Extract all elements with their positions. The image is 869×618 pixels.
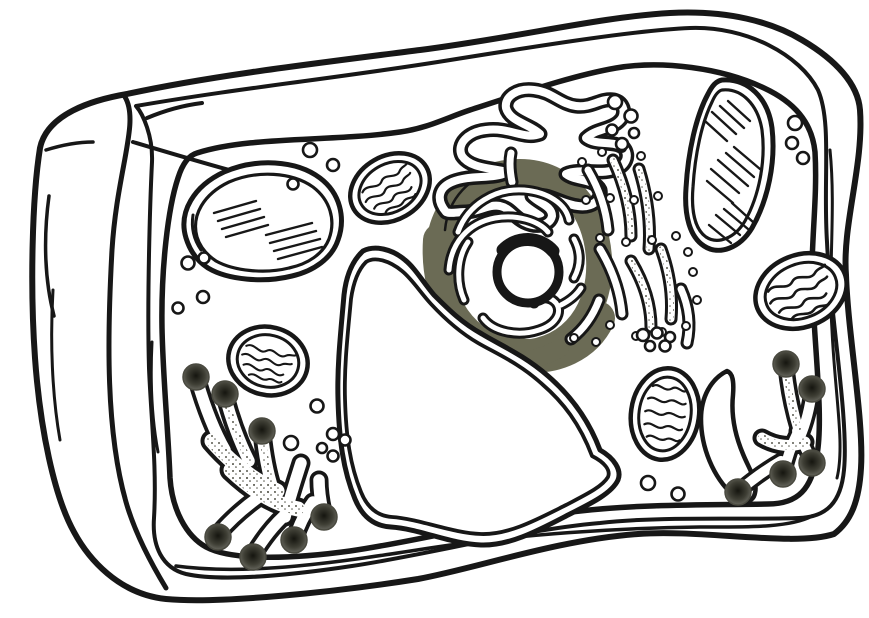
secretory-vesicle	[240, 544, 266, 570]
secretory-vesicle	[770, 461, 796, 487]
nucleolus	[497, 240, 559, 303]
secretory-vesicle	[281, 527, 307, 553]
secretory-vesicle	[311, 504, 337, 530]
secretory-vesicle	[249, 418, 275, 444]
secretory-vesicle	[799, 376, 825, 402]
secretory-vesicle	[725, 479, 751, 505]
secretory-vesicle	[183, 364, 209, 390]
secretory-vesicle	[205, 524, 231, 550]
secretory-vesicle	[212, 381, 238, 407]
secretory-vesicle	[799, 450, 825, 476]
secretory-vesicle	[773, 351, 799, 377]
plant-cell-diagram	[0, 0, 869, 618]
